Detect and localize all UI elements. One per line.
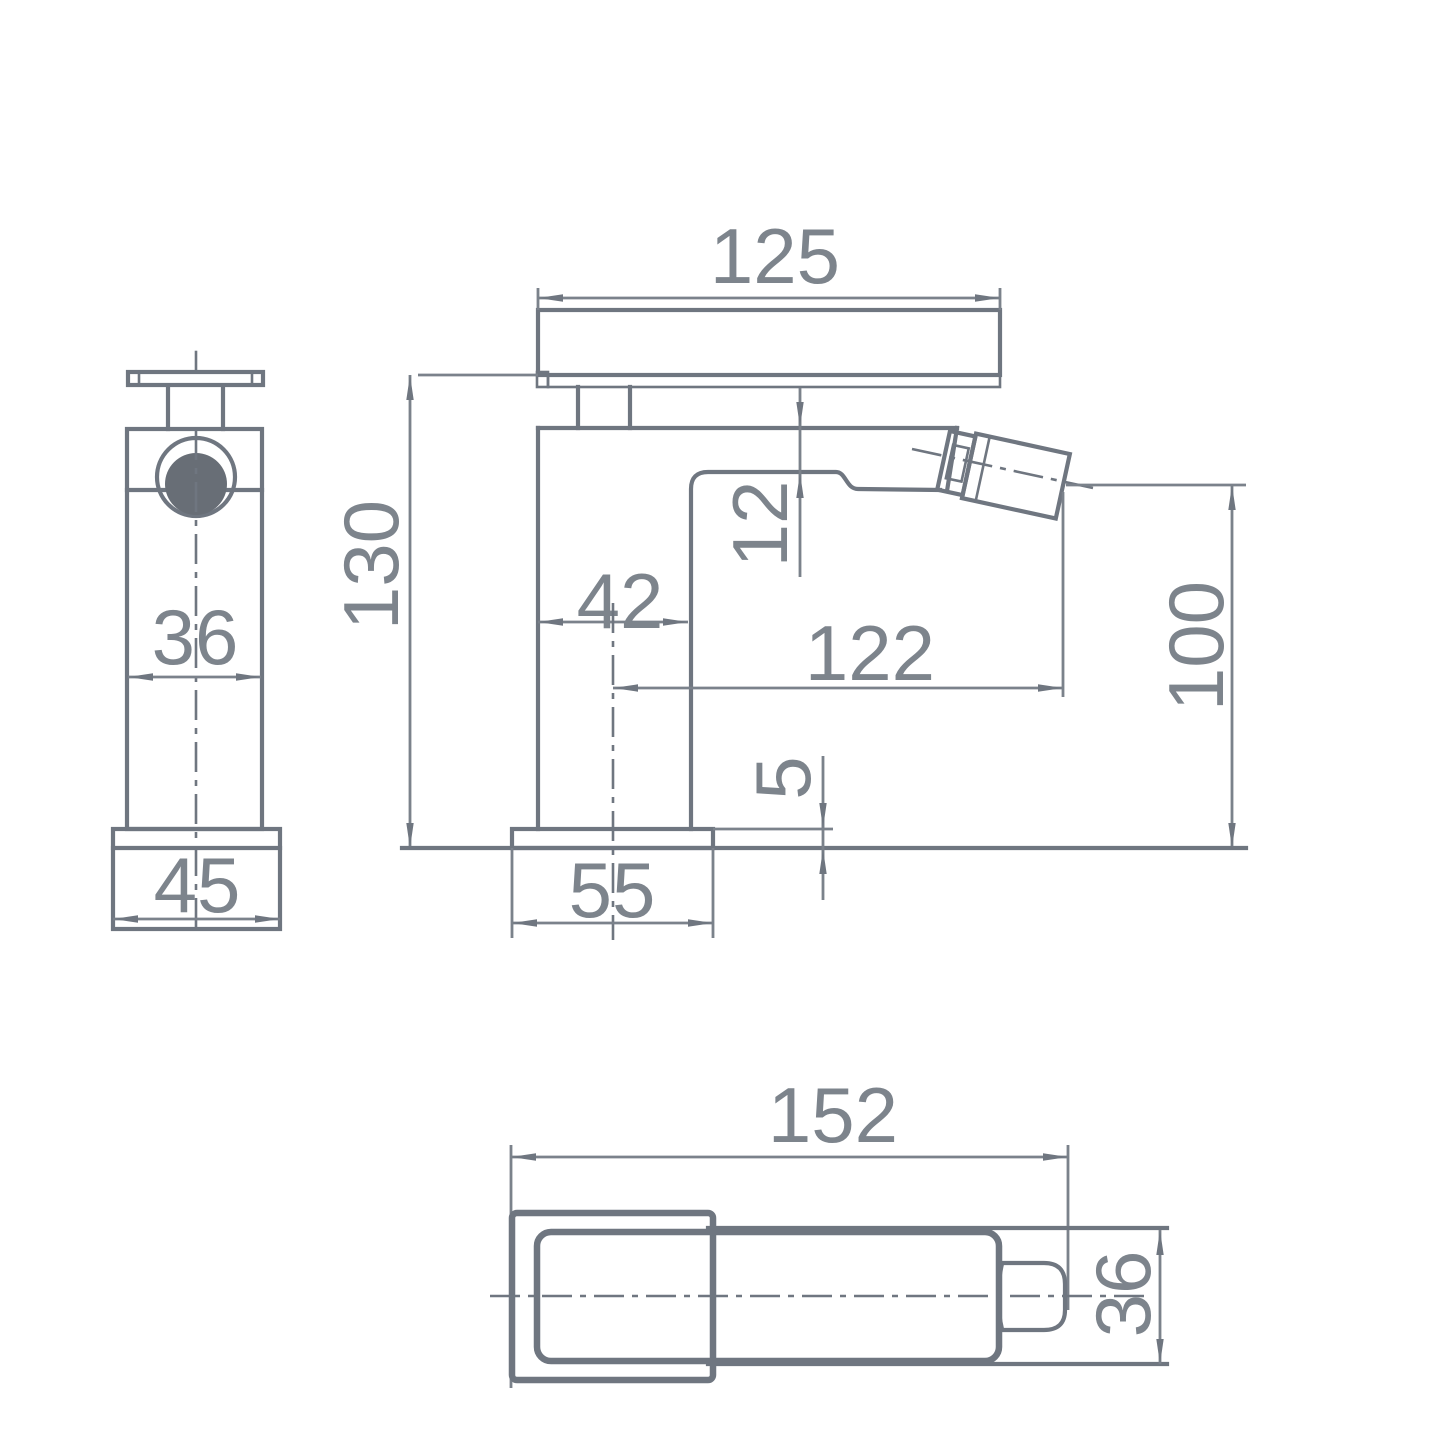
dim-label-overall-height: 130 bbox=[327, 500, 415, 630]
drawing-sheet: 36 45 125 12 bbox=[0, 0, 1445, 1445]
plan-view: 152 36 bbox=[490, 1071, 1167, 1388]
dim-label-plan-width: 36 bbox=[1079, 1251, 1167, 1338]
front-handle-stem bbox=[168, 386, 223, 429]
dim-label-outlet-height: 100 bbox=[1152, 581, 1240, 711]
dim-label-base-thickness: 5 bbox=[739, 756, 827, 799]
side-cartridge-stem bbox=[578, 387, 630, 428]
dim-label-spout-drop: 12 bbox=[716, 481, 804, 568]
technical-drawing-canvas: 36 45 125 12 bbox=[0, 0, 1445, 1445]
dim-label-spout-reach: 122 bbox=[805, 609, 935, 697]
front-lever-bar bbox=[128, 372, 263, 385]
dim-label-body-depth: 42 bbox=[577, 557, 664, 645]
dim-label-front-body-width: 36 bbox=[152, 593, 239, 681]
side-lever-bar bbox=[538, 310, 1000, 375]
dim-label-overall-length: 152 bbox=[768, 1071, 898, 1159]
aerator-divider-line bbox=[976, 437, 990, 501]
dim-label-front-base-width: 45 bbox=[154, 841, 241, 929]
front-view: 36 45 bbox=[113, 352, 280, 932]
dim-label-lever-length: 125 bbox=[710, 212, 840, 300]
side-view: 125 12 42 122 100 bbox=[327, 212, 1246, 940]
aerator-body bbox=[962, 434, 1070, 519]
overall-length-extension-lines bbox=[511, 1145, 1068, 1388]
dim-label-base-length: 55 bbox=[569, 846, 656, 934]
